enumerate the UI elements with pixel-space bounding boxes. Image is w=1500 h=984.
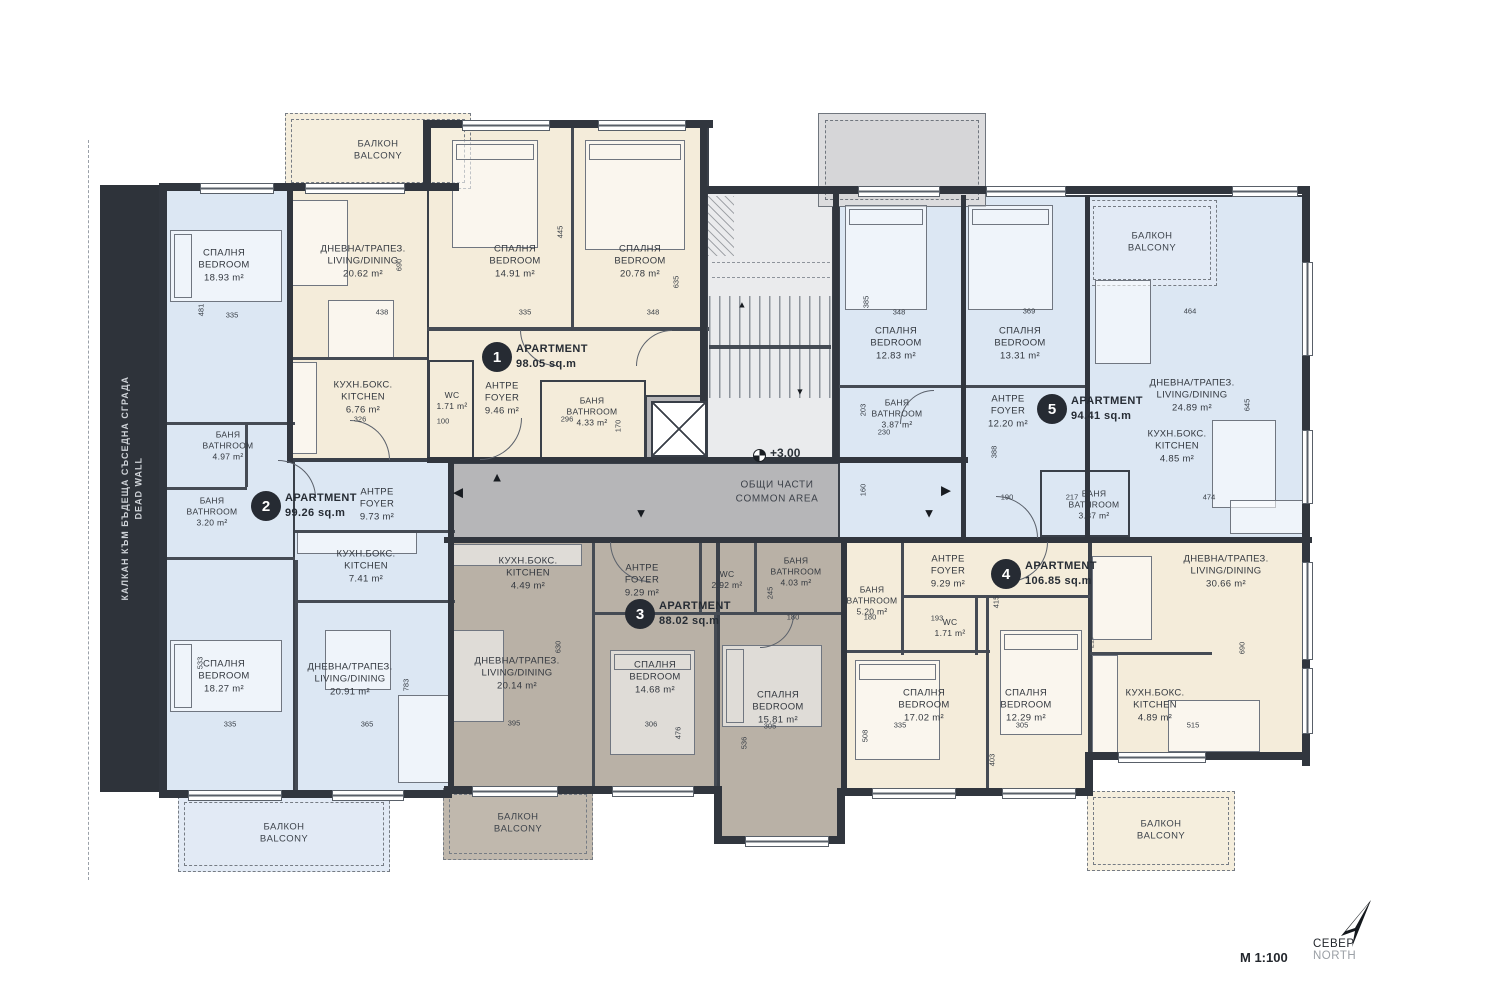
apartment-3-info: APARTMENT88.02 sq.m [659,599,731,629]
scale-label: М 1:100 [1240,950,1288,965]
wall [961,195,966,540]
dimension: 369 [1023,307,1036,316]
dimension: 335 [226,311,239,320]
room-label-foyer: АНТРЕFOYER9.29 m² [625,562,659,599]
window [872,788,956,799]
kitchen-counter-icon [289,362,317,454]
partition [1090,652,1212,655]
room-label-bedroom: СПАЛНЯBEDROOM14.91 m² [489,243,540,280]
sofa-icon [1092,556,1152,640]
shaft-hatch [708,196,734,256]
dimension: 217 [1066,493,1079,502]
room-label-wc: WC2.92 m² [712,569,743,591]
room-label-kitchen: КУХН.БОКС.KITCHEN4.49 m² [499,555,558,592]
apartment-1-badge: 1 [482,342,512,372]
window [1232,186,1298,197]
dimension: 536 [740,737,749,750]
room-label-foyer: АНТРЕFOYER12.20 m² [988,393,1028,430]
partition [754,540,757,615]
window [1302,668,1313,734]
wall [444,537,1312,543]
kitchen-counter-icon [1092,655,1118,753]
room-label-bedroom: СПАЛНЯBEDROOM17.02 m² [898,687,949,724]
balcony-label: БАЛКОНBALCONY [1128,231,1176,256]
room-label-bathroom: БАНЯBATHROOM4.97 m² [203,429,254,462]
room-label-foyer: АНТРЕFOYER9.29 m² [931,553,965,590]
partition [845,650,990,653]
dimension: 645 [1243,399,1252,412]
sofa-icon [1095,280,1151,364]
window [986,186,1066,197]
wall [448,460,454,790]
kitchen-counter-icon [1230,500,1306,534]
window [598,120,686,131]
dimension: 395 [508,719,521,728]
partition [838,385,965,388]
wall [714,786,722,844]
bed-icon [845,205,927,310]
dimension: 348 [893,308,906,317]
partition [295,530,455,533]
room-label-kitchen: КУХН.БОКС.KITCHEN6.76 m² [334,379,393,416]
apartment-3-badge: 3 [625,599,655,629]
room-label-wc: WC1.71 m² [437,390,468,412]
room-label-bathroom: БАНЯBATHROOM4.33 m² [567,395,618,428]
dimension: 305 [1016,721,1029,730]
partition [975,595,978,655]
bed-icon [968,205,1053,310]
dimension: 170 [614,420,623,433]
entry-arrow-icon: ▼ [635,507,648,520]
partition [295,560,298,790]
dimension: 190 [1001,493,1014,502]
partition [961,385,1090,388]
stair-rail [709,345,831,349]
window [462,120,550,131]
room-label-bedroom: СПАЛНЯBEDROOM12.83 m² [870,325,921,362]
room-label-kitchen: КУХН.БОКС.KITCHEN4.89 m² [1126,687,1185,724]
bed-icon [585,140,685,250]
dimension: 474 [1203,493,1216,502]
dimension: 203 [859,404,868,417]
dead-wall: КАЛКАН КЪМ БЪДЕЩА СЪСЕДНА СГРАДАDEAD WAL… [100,185,164,792]
entry-arrow-icon: ▲ [491,471,504,484]
window [1302,262,1313,356]
room-label-living: ДНЕВНА/ТРАПЕЗ.LIVING/DINING24.89 m² [1149,377,1234,414]
dimension: 415 [992,596,1001,609]
north-label: СЕВЕР NORTH [1313,938,1356,962]
apartment-5-badge: 5 [1037,394,1067,424]
apartment-5-info: APARTMENT94.41 sq.m [1071,394,1143,424]
wall [833,190,839,462]
partition [163,422,295,425]
entry-arrow-icon: ◀ [453,486,463,499]
partition [163,557,295,560]
dead-wall-label: КАЛКАН КЪМ БЪДЕЩА СЪСЕДНА СГРАДАDEAD WAL… [119,376,146,600]
dimension: 217 [1087,636,1096,649]
window [1118,752,1206,763]
apartment-2-badge: 2 [251,491,281,521]
entry-arrow-icon: ▼ [923,507,936,520]
room-label-living: ДНЕВНА/ТРАПЕЗ.LIVING/DINING30.66 m² [1183,553,1268,590]
dimension: 515 [1187,721,1200,730]
dimension: 365 [361,720,374,729]
room-label-bathroom: БАНЯBATHROOM4.03 m² [771,555,822,588]
room-label-living: ДНЕВНА/ТРАПЕЗ.LIVING/DINING20.62 m² [320,243,405,280]
room-label-bathroom: БАНЯBATHROOM3.20 m² [187,495,238,528]
dimension: 438 [376,308,389,317]
room-label-foyer: АНТРЕFOYER9.46 m² [485,380,519,417]
dimension: 180 [864,613,877,622]
dimension: 630 [554,641,563,654]
dimension: 335 [224,720,237,729]
partition [287,357,427,360]
wall [427,457,968,463]
window [200,183,274,194]
window [612,786,694,797]
window [858,186,940,197]
window [1302,430,1313,504]
dimension: 326 [354,415,367,424]
room-label-kitchen: КУХН.БОКС.KITCHEN7.41 m² [337,548,396,585]
dimension: 180 [787,613,800,622]
floor-plan: КАЛКАН КЪМ БЪДЕЩА СЪСЕДНА СГРАДАDEAD WAL… [0,0,1500,984]
apartment-1-info: APARTMENT98.05 sq.m [516,342,588,372]
dimension: 481 [197,304,206,317]
partition [163,487,247,490]
dimension: 635 [672,276,681,289]
room-label-living: ДНЕВНА/ТРАПЕЗ.LIVING/DINING20.91 m² [307,661,392,698]
room-label-bedroom: СПАЛНЯBEDROOM20.78 m² [614,243,665,280]
dimension: 783 [402,679,411,692]
dimension: 690 [1238,642,1247,655]
balcony-label: БАЛКОНBALCONY [1137,819,1185,844]
dimension: 230 [878,428,891,437]
room-label-bathroom: БАНЯBATHROOM3.87 m² [872,397,923,430]
room-label-bedroom: СПАЛНЯBEDROOM18.93 m² [198,247,249,284]
dimension: 305 [764,722,777,731]
window [472,786,558,797]
dimension: 388 [990,446,999,459]
stair-down-arrow-icon: ▼ [796,388,805,397]
window [332,790,404,801]
wall [159,183,167,798]
window [188,790,282,801]
wall [841,540,847,790]
wall [287,187,293,463]
window [745,836,829,847]
balcony-label: БАЛКОНBALCONY [260,822,308,847]
room-label-bedroom: СПАЛНЯBEDROOM13.31 m² [994,325,1045,362]
dimension: 245 [766,587,775,600]
window [305,183,405,194]
dimension: 160 [859,484,868,497]
partition [592,540,595,786]
dimension: 193 [931,614,944,623]
partition [986,595,1090,598]
level-marker-icon [753,449,766,462]
partition [571,124,574,330]
common-area-label: ОБЩИ ЧАСТИCOMMON AREA [736,479,819,506]
room-label-bedroom: СПАЛНЯBEDROOM14.68 m² [629,659,680,696]
window [1002,788,1076,799]
bed-icon [452,140,538,248]
room-label-bedroom: СПАЛНЯBEDROOM18.27 m² [198,658,249,695]
room-label-living: ДНЕВНА/ТРАПЕЗ.LIVING/DINING20.14 m² [474,655,559,692]
balcony-label: БАЛКОНBALCONY [494,812,542,837]
stair-flight-above [712,277,830,278]
dimension: 335 [894,721,907,730]
dimension: 508 [861,730,870,743]
property-line [88,140,89,880]
elevator [651,401,707,457]
apartment-4-info: APARTMENT106.85 sq.m [1025,559,1097,589]
dimension: 335 [519,308,532,317]
dimension: 100 [437,417,450,426]
dimension: 476 [674,727,683,740]
dimension: 533 [196,657,205,670]
partition [295,600,455,603]
dimension: 445 [556,226,565,239]
stair-flight-above [712,262,830,263]
room-label-bedroom: СПАЛНЯBEDROOM12.29 m² [1000,687,1051,724]
entry-arrow-icon: ▶ [941,484,951,497]
apartment-4-badge: 4 [991,559,1021,589]
balcony-label: БАЛКОНBALCONY [354,139,402,164]
dimension: 348 [647,308,660,317]
window [1302,562,1313,660]
room-label-bedroom: СПАЛНЯBEDROOM15.81 m² [752,689,803,726]
sofa-icon [398,695,450,783]
room-label-kitchen: КУХН.БОКС.KITCHEN4.85 m² [1148,428,1207,465]
dimension: 306 [645,720,658,729]
apartment-2-info: APARTMENT99.26 sq.m [285,491,357,521]
room-label-foyer: АНТРЕFOYER9.73 m² [360,486,394,523]
dimension: 690 [395,259,404,272]
dining-table-icon [1212,420,1276,508]
dimension: 403 [988,754,997,767]
level-label: +3.00 [770,446,800,460]
dimension: 464 [1184,307,1197,316]
dimension: 385 [862,296,871,309]
wall [423,120,431,191]
dimension: 296 [561,415,574,424]
stair-up-arrow-icon: ▲ [738,301,747,310]
